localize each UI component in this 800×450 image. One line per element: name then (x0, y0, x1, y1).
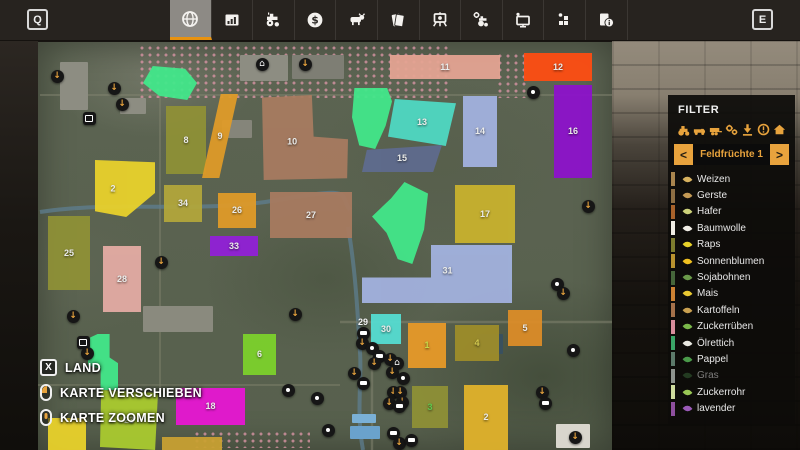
filter-crop-hafer[interactable]: Hafer (668, 204, 795, 220)
filter-crop-zuckerrben[interactable]: Zuckerrüben (668, 319, 795, 335)
crop-color-stripe (671, 172, 675, 186)
map-field-11[interactable]: 11 (390, 55, 500, 79)
field-number: 15 (397, 154, 407, 163)
poi-icon[interactable] (567, 344, 580, 357)
crop-color-stripe (671, 320, 675, 334)
download-station-icon[interactable]: ↓ (155, 256, 168, 269)
category-label: Feldfrüchte 1 (693, 144, 770, 165)
shop-icon[interactable] (83, 112, 96, 125)
filter-truck-icon[interactable] (693, 123, 706, 136)
crop-label: Pappel (697, 354, 728, 365)
map-field-25[interactable]: 25 (48, 216, 90, 290)
field-number: 5 (522, 324, 527, 333)
field-number: 34 (178, 199, 188, 208)
download-station-icon[interactable]: ↓ (393, 437, 406, 450)
category-prev-button[interactable]: < (674, 144, 693, 165)
download-station-icon[interactable]: ↓ (67, 310, 80, 323)
download-station-icon[interactable]: ↓ (582, 200, 595, 213)
crop-zuckerrben-icon (680, 323, 694, 330)
background-wall-left (0, 40, 38, 450)
field-number: 2 (110, 184, 115, 193)
crop-color-stripe (671, 287, 675, 301)
crop-color-stripe (671, 303, 675, 317)
filter-crop-mais[interactable]: Mais (668, 286, 795, 302)
tab-shop-tractor-gear[interactable] (461, 0, 503, 40)
field-number: 25 (64, 249, 74, 258)
field-number: 4 (474, 339, 479, 348)
field-number: 33 (229, 242, 239, 251)
field-number: 13 (417, 118, 427, 127)
field-number: 2 (483, 413, 488, 422)
filter-crop-lavender[interactable]: lavender (668, 400, 795, 416)
filter-download-icon[interactable] (741, 123, 754, 136)
keyboard-key-icon: X (40, 359, 57, 376)
field-number: 12 (553, 63, 563, 72)
vehicle-icon[interactable] (357, 377, 370, 390)
map-field-8[interactable]: 8 (166, 106, 206, 174)
crop-lavender-icon (680, 405, 694, 412)
vehicle-icon[interactable] (393, 400, 406, 413)
field-number: 27 (306, 211, 316, 220)
crop-color-stripe (671, 238, 675, 252)
crop-gras-icon (680, 372, 694, 379)
map-field-6[interactable]: 6 (243, 334, 276, 375)
filter-crop-sojabohnen[interactable]: Sojabohnen (668, 269, 795, 285)
next-menu-key-button[interactable]: E (752, 9, 773, 30)
map-field-1[interactable]: 1 (408, 323, 446, 368)
mouse-left-button-icon (40, 384, 52, 401)
download-station-icon[interactable]: ↓ (569, 431, 582, 444)
statistics-chart-icon (222, 10, 242, 30)
filter-crop-weizen[interactable]: Weizen (668, 171, 795, 187)
legend-row: XLAND (40, 358, 202, 377)
poi-icon[interactable] (282, 384, 295, 397)
map-field-26[interactable]: 26 (218, 193, 256, 228)
filter-trailer-icon[interactable] (709, 123, 722, 136)
filter-crop-list: WeizenGersteHaferBaumwolleRapsSonnenblum… (668, 171, 795, 417)
download-station-icon[interactable]: ↓ (108, 82, 121, 95)
filter-crop-lrettich[interactable]: Ölrettich (668, 335, 795, 351)
svg-text:$: $ (311, 15, 318, 27)
crop-sonnenblumen-icon (680, 258, 694, 265)
tab-statistics-chart[interactable] (212, 0, 254, 40)
crop-label: Sojabohnen (697, 272, 750, 283)
category-next-button[interactable]: > (770, 144, 789, 165)
filter-crop-pappel[interactable]: Pappel (668, 351, 795, 367)
crop-lrettich-icon (680, 340, 694, 347)
crop-color-stripe (671, 402, 675, 416)
filter-category-selector: < Feldfrüchte 1 > (674, 144, 789, 165)
legend-row: KARTE VERSCHIEBEN (40, 383, 202, 402)
field-number: 11 (440, 63, 450, 72)
map-field-4[interactable]: 4 (455, 325, 499, 361)
crop-baumwolle-icon (680, 225, 694, 232)
tab-production-blocks[interactable] (544, 0, 586, 40)
legend-label: KARTE VERSCHIEBEN (60, 386, 202, 400)
map-globe-icon (180, 9, 200, 29)
filter-icon-row (668, 123, 795, 136)
crop-gerste-icon (680, 192, 694, 199)
crop-zuckerrohr-icon (680, 389, 694, 396)
map-field-34[interactable]: 34 (164, 185, 202, 222)
map-structure (60, 62, 88, 110)
crop-label: Baumwolle (697, 223, 746, 234)
field-number: 10 (287, 137, 297, 146)
field-number: 18 (205, 402, 215, 411)
field-number: 8 (183, 136, 188, 145)
legend-label: LAND (65, 361, 101, 375)
tab-help-info[interactable] (586, 0, 628, 40)
legend-row: KARTE ZOOMEN (40, 408, 202, 427)
crop-mais-icon (680, 290, 694, 297)
help-info-icon (596, 10, 616, 30)
filter-gears-icon[interactable] (725, 123, 738, 136)
menu-tabs: $ (170, 0, 628, 40)
crop-hafer-icon (680, 208, 694, 215)
tab-garage-screen[interactable] (503, 0, 545, 40)
crop-label: Sonnenblumen (697, 256, 764, 267)
poi-icon[interactable] (397, 372, 410, 385)
tab-map-globe[interactable] (170, 0, 212, 40)
field-number: 6 (257, 350, 262, 359)
map-text-label: 29 (358, 317, 368, 327)
map-field-2[interactable]: 2 (464, 385, 508, 450)
map-legend: XLANDKARTE VERSCHIEBENKARTE ZOOMEN (40, 358, 202, 427)
field-number: 17 (480, 210, 490, 219)
download-station-icon[interactable]: ↓ (557, 287, 570, 300)
crop-color-stripe (671, 189, 675, 203)
download-station-icon[interactable]: ↓ (289, 308, 302, 321)
production-blocks-icon (555, 10, 575, 30)
map-field-14[interactable]: 14 (463, 96, 497, 167)
vehicle-icon[interactable] (405, 434, 418, 447)
mouse-wheel-icon (40, 409, 52, 426)
tab-vehicles-tractor[interactable] (253, 0, 295, 40)
garage-screen-icon (513, 10, 533, 30)
crop-label: Gras (697, 370, 719, 381)
crop-color-stripe (671, 369, 675, 383)
map-field-5[interactable]: 5 (508, 310, 542, 346)
crop-color-stripe (671, 254, 675, 268)
crop-label: lavender (697, 403, 735, 414)
map-field-33[interactable]: 33 (210, 236, 258, 256)
field-number: 9 (217, 132, 222, 141)
top-menu-bar: Q $ E (0, 0, 800, 41)
vehicle-icon[interactable] (539, 397, 552, 410)
crop-color-stripe (671, 271, 675, 285)
missions-easel-icon (430, 10, 450, 30)
field-number: 26 (232, 206, 242, 215)
crop-label: Ölrettich (697, 338, 734, 349)
download-station-icon[interactable]: ↓ (368, 357, 381, 370)
crop-label: Zuckerrüben (697, 321, 753, 332)
crop-label: Zuckerrohr (697, 387, 745, 398)
animals-cow-icon (347, 10, 367, 30)
map-field-30[interactable]: 30 (371, 314, 401, 344)
download-station-icon[interactable]: ↓ (299, 58, 312, 71)
crop-label: Mais (697, 288, 718, 299)
poi-icon[interactable] (311, 392, 324, 405)
filter-crop-baumwolle[interactable]: Baumwolle (668, 220, 795, 236)
shop-tractor-gear-icon (471, 10, 491, 30)
tab-contracts-papers[interactable] (378, 0, 420, 40)
map-field-27[interactable]: 27 (270, 192, 352, 238)
contracts-papers-icon (388, 10, 408, 30)
crop-label: Gerste (697, 190, 727, 201)
map-structure (350, 426, 380, 439)
filter-crop-sonnenblumen[interactable]: Sonnenblumen (668, 253, 795, 269)
crop-color-stripe (671, 205, 675, 219)
crop-color-stripe (671, 385, 675, 399)
map-structure (352, 414, 376, 423)
finances-dollar-icon: $ (305, 10, 325, 30)
crop-color-stripe (671, 221, 675, 235)
field-number: 14 (475, 127, 485, 136)
farmhouse-icon[interactable]: ⌂ (256, 58, 269, 71)
crop-label: Raps (697, 239, 720, 250)
crop-raps-icon (680, 241, 694, 248)
filter-alert-icon[interactable] (757, 123, 770, 136)
field-number: 3 (427, 403, 432, 412)
field-number: 16 (568, 127, 578, 136)
filter-crop-zuckerrohr[interactable]: Zuckerrohr (668, 384, 795, 400)
map-field[interactable] (162, 437, 222, 450)
field-number: 30 (381, 325, 391, 334)
map-field-28[interactable]: 28 (103, 246, 141, 312)
poi-icon[interactable] (322, 424, 335, 437)
crop-weizen-icon (680, 176, 694, 183)
legend-label: KARTE ZOOMEN (60, 411, 165, 425)
field-number: 31 (442, 266, 452, 275)
map-field-3[interactable]: 3 (412, 386, 448, 428)
poi-icon[interactable] (527, 86, 540, 99)
crop-label: Weizen (697, 174, 730, 185)
filter-title: FILTER (678, 104, 795, 116)
map-field-17[interactable]: 17 (455, 185, 515, 243)
filter-crop-raps[interactable]: Raps (668, 237, 795, 253)
field-number: 28 (117, 275, 127, 284)
crop-color-stripe (671, 352, 675, 366)
crop-kartoffeln-icon (680, 307, 694, 314)
crop-color-stripe (671, 336, 675, 350)
filter-panel: FILTER < Feldfrüchte 1 > WeizenGersteHaf… (668, 95, 795, 424)
tab-animals-cow[interactable] (336, 0, 378, 40)
tab-finances-dollar[interactable]: $ (295, 0, 337, 40)
crop-pappel-icon (680, 356, 694, 363)
filter-tractor-icon[interactable] (677, 123, 690, 136)
download-station-icon[interactable]: ↓ (51, 70, 64, 83)
field-number: 1 (424, 341, 429, 350)
prev-menu-key-button[interactable]: Q (27, 9, 48, 30)
download-station-icon[interactable]: ↓ (116, 98, 129, 111)
crop-label: Hafer (697, 206, 721, 217)
crop-sojabohnen-icon (680, 274, 694, 281)
vehicles-tractor-icon (263, 10, 283, 30)
filter-crop-gerste[interactable]: Gerste (668, 187, 795, 203)
tab-missions-easel[interactable] (420, 0, 462, 40)
crop-label: Kartoffeln (697, 305, 740, 316)
map-field-16[interactable]: 16 (554, 85, 592, 178)
filter-crop-gras[interactable]: Gras (668, 368, 795, 384)
map-structure (143, 306, 213, 332)
filter-crop-kartoffeln[interactable]: Kartoffeln (668, 302, 795, 318)
filter-house-icon[interactable] (773, 123, 786, 136)
map-field-12[interactable]: 12 (524, 53, 592, 81)
